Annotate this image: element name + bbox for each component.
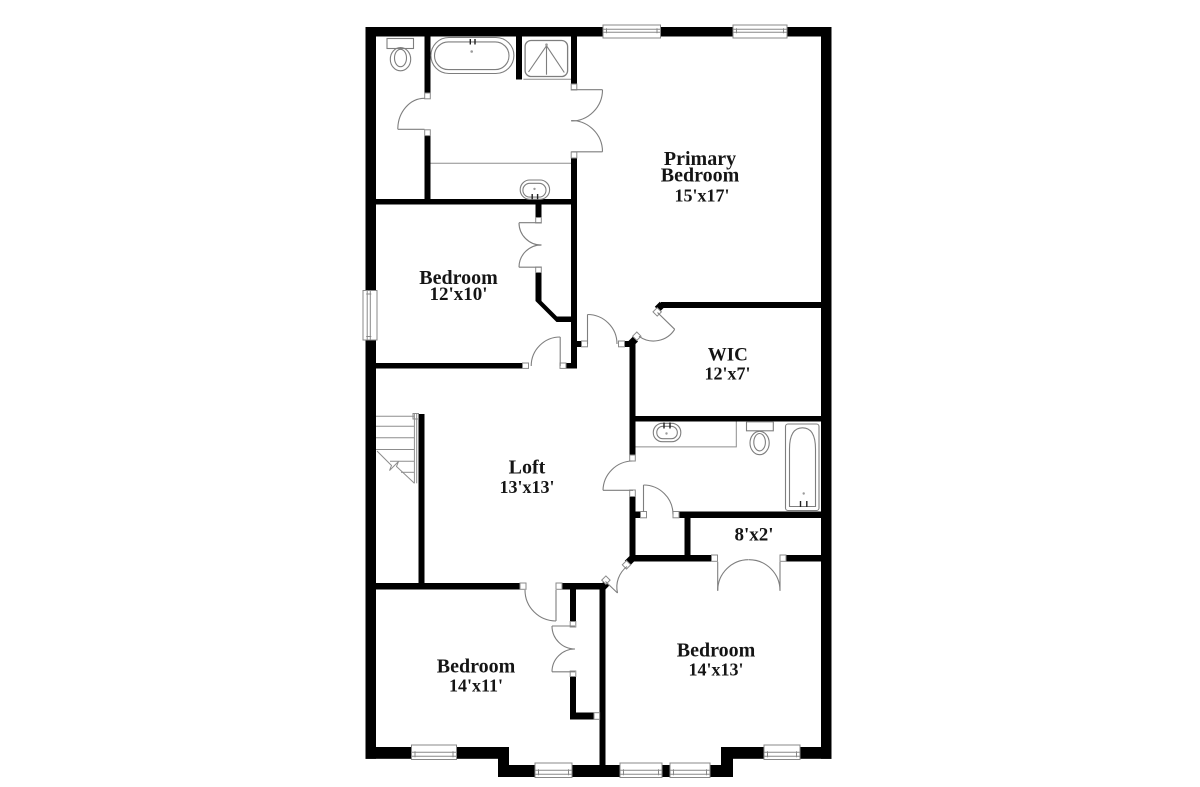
svg-text:13'x13': 13'x13' (499, 477, 554, 497)
svg-text:Loft: Loft (509, 457, 546, 479)
svg-text:Bedroom: Bedroom (677, 640, 756, 662)
svg-text:14'x13': 14'x13' (688, 659, 743, 679)
svg-text:15'x17': 15'x17' (674, 185, 729, 205)
svg-text:12'x10': 12'x10' (429, 284, 487, 305)
svg-text:Bedroom: Bedroom (661, 164, 740, 186)
svg-text:8'x2': 8'x2' (734, 524, 773, 545)
svg-text:14'x11': 14'x11' (449, 676, 503, 696)
svg-text:12'x7': 12'x7' (704, 363, 750, 383)
svg-text:Bedroom: Bedroom (437, 656, 516, 678)
